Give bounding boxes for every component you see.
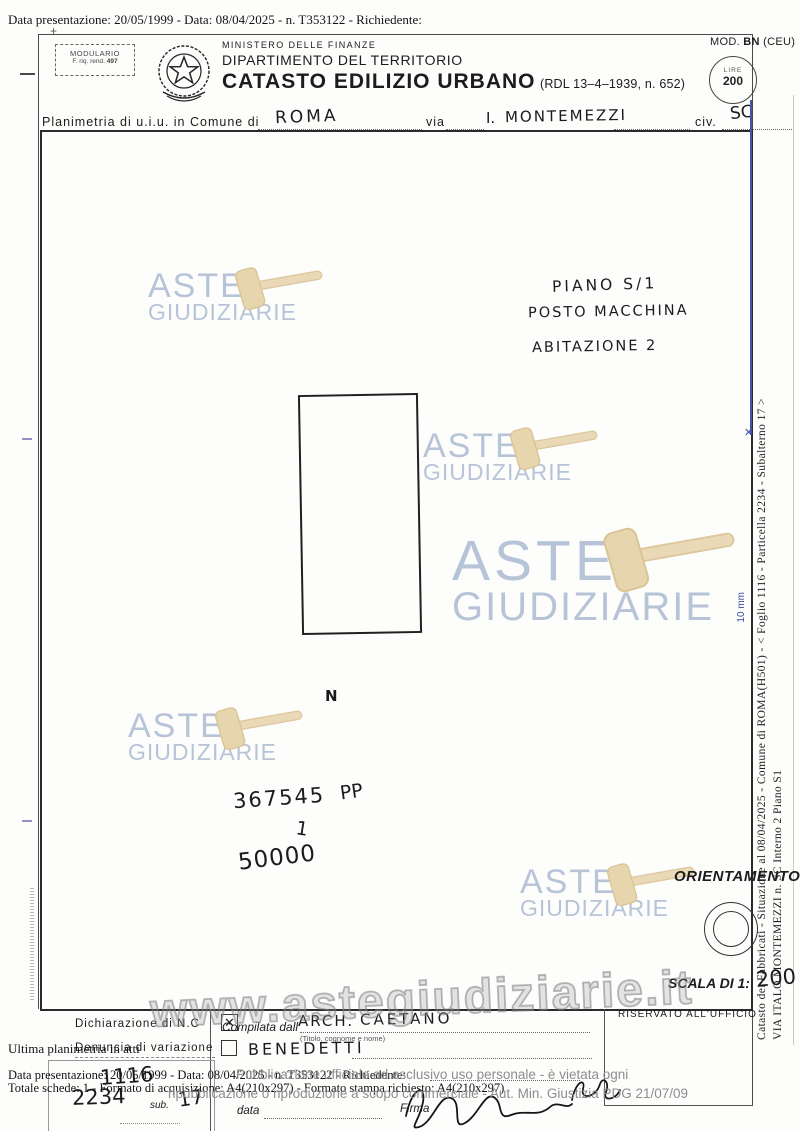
modulario-sub: F. riq. rend. (72, 58, 105, 65)
via-label: via (426, 115, 445, 129)
handwritten-dwelling-note: ABITAZIONE 2 (532, 338, 658, 356)
dotted-line (264, 1117, 382, 1119)
form-border-top (38, 34, 753, 35)
handwritten-floor-note: PIANO S/1 (552, 274, 658, 296)
planimetria-label: Planimetria di u.i.u. in Comune di (42, 115, 259, 129)
handwritten-surname: BENEDETTI (248, 1038, 365, 1059)
paper-edge-line (793, 95, 794, 1045)
ministry-line: MINISTERO DELLE FINANZE (222, 40, 376, 50)
handwritten-scale-value: 200 (755, 964, 797, 991)
sub-label: sub. (150, 1100, 169, 1111)
document-title: CATASTO EDILIZIO URBANO (222, 70, 536, 93)
dotted-line (120, 1123, 180, 1124)
presentation-date-line: Data presentazione: 20/05/1999 - Data: 0… (8, 12, 422, 28)
document-title-row: CATASTO EDILIZIO URBANO (RDL 13–4–1939, … (222, 70, 685, 94)
civ-label: civ. (695, 115, 717, 129)
registration-dash (22, 438, 32, 440)
handwritten-via-name: MONTEMEZZI (505, 106, 627, 126)
handwritten-via-prefix: I. (486, 109, 495, 127)
dotted-line (614, 128, 690, 130)
ultima-planimetria-line: Ultima planimetria in atti (8, 1041, 140, 1057)
italy-coat-of-arms-icon (155, 40, 213, 106)
lire-200-stamp: LIRE 200 (709, 56, 757, 104)
form-border-left (38, 34, 39, 1009)
department-line: DIPARTIMENTO DEL TERRITORIO (222, 52, 463, 68)
mod-suffix: (CEU) (763, 36, 795, 48)
ruler-tick-mark: ✕ (744, 426, 753, 439)
dashed-line (75, 1057, 215, 1058)
handwritten-comune: ROMA (275, 106, 339, 128)
document-title-reference: (RDL 13–4–1939, n. 652) (540, 77, 685, 91)
data-label: data (237, 1105, 259, 1117)
floor-plan-outline (298, 393, 422, 635)
scanned-cadastral-document: Data presentazione: 20/05/1999 - Data: 0… (0, 0, 800, 1131)
dotted-line (446, 128, 484, 130)
mod-code: BN (743, 36, 760, 48)
handwritten-figure-pp: PP (339, 780, 365, 805)
registration-dash (22, 820, 32, 822)
mod-label: MOD. (710, 36, 740, 48)
handwritten-north-mark: N (325, 687, 338, 705)
handwritten-parking-note: POSTO MACCHINA (528, 303, 689, 322)
ruler-length-label: 10 mm (736, 592, 747, 623)
dotted-line (258, 128, 422, 130)
denuncia-checkbox[interactable] (221, 1040, 237, 1056)
modulario-number: 497 (107, 58, 118, 65)
publication-notice-line1: Pubblicazione ufficiale ad esclusivo uso… (236, 1067, 628, 1082)
modulario-box: MODULARIO F. riq. rend. 497 (55, 44, 135, 76)
dotted-line (352, 1057, 592, 1059)
publication-notice-line2: ripubblicazione o riproduzione a scopo c… (168, 1086, 688, 1101)
registration-dash (20, 73, 35, 75)
compass-inner-circle (713, 911, 749, 947)
modulario-label: MODULARIO (56, 49, 134, 58)
stamp-currency: LIRE (710, 67, 756, 74)
edge-micro-text (30, 888, 34, 1000)
blue-ruler-line (750, 100, 752, 435)
mod-reference: MOD. BN (CEU) (710, 36, 795, 48)
dotted-line (300, 1031, 590, 1033)
stamp-value: 200 (710, 74, 756, 88)
cadastre-reference-vertical-text: Catasto dei Fabbricati - Situazione al 0… (756, 95, 768, 1040)
riservato-box-bottom-border (604, 1105, 753, 1106)
